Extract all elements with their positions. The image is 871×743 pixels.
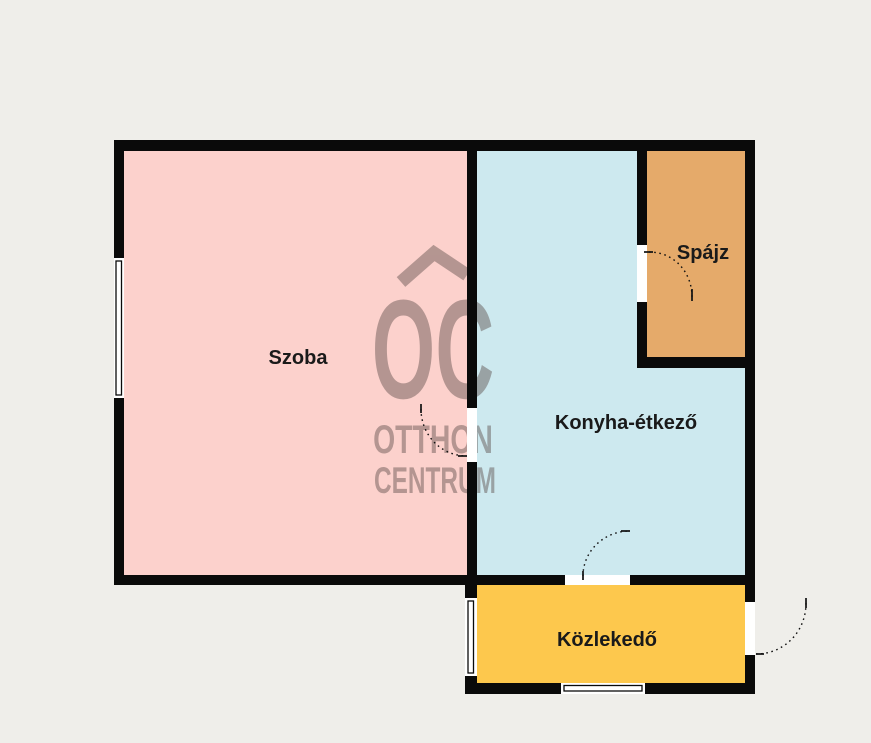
window-icon [564,686,642,692]
door-opening [745,602,755,655]
wall-left-upper [114,140,124,258]
wall-right-upper [745,140,755,602]
wall-left-lower [114,398,124,585]
window-icon [116,261,122,395]
room-konyha-label: Konyha-étkező [555,412,697,434]
wall-top [114,140,755,151]
door-opening [565,575,630,585]
wall-spajz-left-upper [637,140,647,245]
watermark-line2-text: CENTRUM [374,460,496,501]
room-szoba-label: Szoba [269,347,329,369]
window-kozlekedo-left [465,598,477,676]
wall-bottom-main-right [630,575,755,585]
door-opening [637,245,647,302]
wall-kozlekedo-bottom-left [465,683,561,694]
wall-spajz-bottom [637,357,755,368]
wall-kozlekedo-bottom-right [645,683,755,694]
floor-plan: OC OTTHON CENTRUM [0,0,871,743]
window-kozlekedo-bottom [561,683,645,694]
window-icon [468,601,474,673]
room-kozlekedo-label: Közlekedő [557,629,657,651]
wall-middle-upper [467,140,477,408]
door-opening [467,408,477,462]
watermark-otthon-centrum: OC OTTHON CENTRUM [372,253,496,501]
wall-kozlekedo-left-upper [465,575,477,598]
wall-middle-lower [467,462,477,575]
wall-bottom-main-left [114,575,565,585]
window-szoba-left [114,258,124,398]
room-spajz-label: Spájz [677,242,729,264]
